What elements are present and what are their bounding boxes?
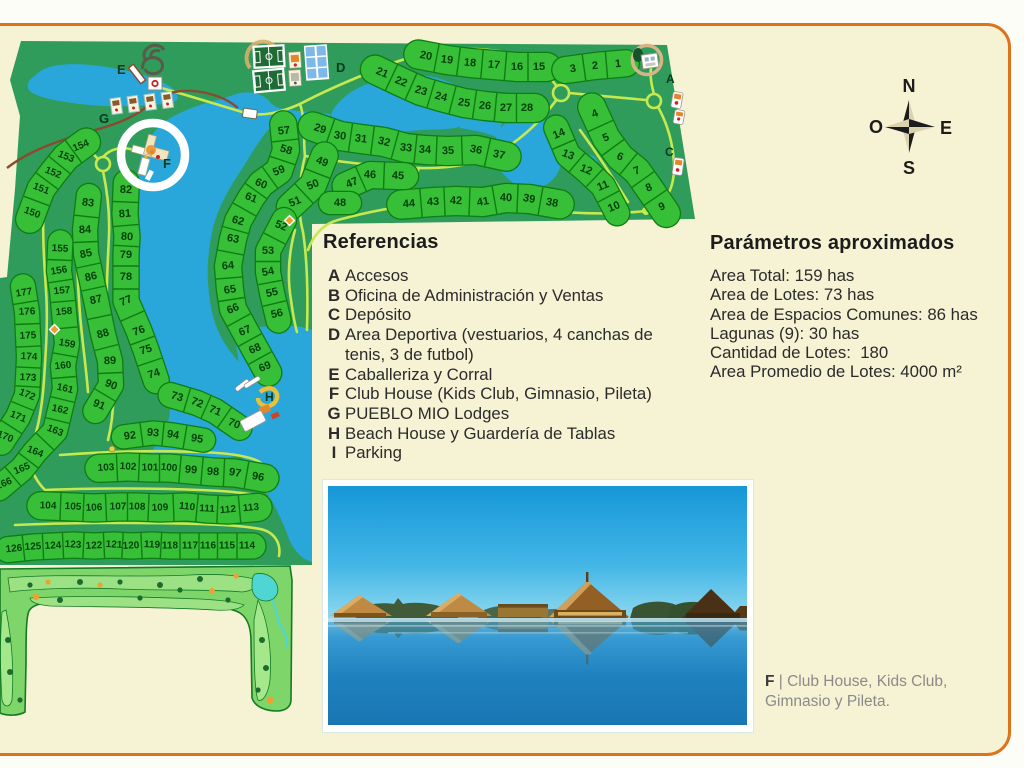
svg-text:30: 30 <box>333 129 347 143</box>
svg-text:158: 158 <box>55 306 73 318</box>
svg-text:118: 118 <box>162 541 179 552</box>
svg-text:N: N <box>903 76 916 96</box>
svg-text:35: 35 <box>442 145 455 157</box>
svg-text:15: 15 <box>533 61 545 73</box>
svg-text:96: 96 <box>251 470 265 484</box>
svg-text:78: 78 <box>120 271 132 283</box>
svg-text:53: 53 <box>262 245 274 257</box>
svg-text:39: 39 <box>522 192 536 206</box>
svg-text:110: 110 <box>178 501 196 514</box>
svg-text:126: 126 <box>5 543 23 556</box>
svg-text:111: 111 <box>199 503 216 515</box>
svg-text:175: 175 <box>19 330 37 342</box>
svg-text:92: 92 <box>123 429 137 442</box>
svg-text:34: 34 <box>419 144 433 156</box>
svg-text:115: 115 <box>219 541 236 552</box>
svg-text:117: 117 <box>182 541 199 552</box>
svg-text:93: 93 <box>146 426 159 439</box>
svg-text:43: 43 <box>427 196 440 208</box>
svg-text:101: 101 <box>142 463 159 474</box>
svg-text:173: 173 <box>19 372 37 384</box>
svg-text:120: 120 <box>122 540 140 552</box>
svg-text:A: A <box>666 72 675 86</box>
svg-text:44: 44 <box>402 197 416 210</box>
svg-text:33: 33 <box>399 141 412 154</box>
svg-text:38: 38 <box>545 196 559 210</box>
svg-text:113: 113 <box>242 502 259 514</box>
svg-text:41: 41 <box>476 195 490 209</box>
svg-text:65: 65 <box>223 283 237 297</box>
svg-text:157: 157 <box>53 285 71 297</box>
svg-text:176: 176 <box>18 306 35 318</box>
svg-text:103: 103 <box>97 462 115 474</box>
svg-text:19: 19 <box>440 53 454 66</box>
svg-text:85: 85 <box>79 247 93 261</box>
svg-text:42: 42 <box>450 195 463 207</box>
svg-text:25: 25 <box>457 96 471 110</box>
svg-text:45: 45 <box>392 170 405 182</box>
svg-text:122: 122 <box>85 540 103 552</box>
svg-text:S: S <box>903 158 915 178</box>
svg-text:48: 48 <box>334 197 346 209</box>
svg-text:H: H <box>265 390 274 404</box>
svg-text:98: 98 <box>207 466 220 479</box>
svg-text:F: F <box>163 156 171 171</box>
svg-text:82: 82 <box>120 184 133 196</box>
svg-text:119: 119 <box>144 539 161 551</box>
svg-text:D: D <box>336 60 345 75</box>
svg-text:57: 57 <box>277 124 290 137</box>
svg-text:40: 40 <box>500 192 513 204</box>
svg-text:106: 106 <box>85 502 102 514</box>
svg-text:97: 97 <box>228 466 242 480</box>
svg-text:31: 31 <box>354 132 368 145</box>
svg-text:81: 81 <box>118 207 131 220</box>
svg-text:O: O <box>869 117 883 137</box>
svg-text:E: E <box>940 118 952 138</box>
svg-text:104: 104 <box>39 500 56 512</box>
svg-text:109: 109 <box>151 502 168 514</box>
svg-text:124: 124 <box>44 540 62 552</box>
svg-text:27: 27 <box>500 102 512 114</box>
svg-text:155: 155 <box>51 243 69 255</box>
svg-text:107: 107 <box>110 502 127 513</box>
svg-text:125: 125 <box>24 541 42 553</box>
svg-text:89: 89 <box>104 355 117 367</box>
svg-text:108: 108 <box>128 501 145 513</box>
svg-text:174: 174 <box>20 351 38 363</box>
svg-text:37: 37 <box>492 148 506 162</box>
svg-text:G: G <box>99 111 109 126</box>
svg-text:116: 116 <box>200 541 217 552</box>
svg-text:64: 64 <box>221 259 235 272</box>
svg-text:20: 20 <box>419 49 433 63</box>
svg-text:E: E <box>117 62 126 77</box>
svg-text:2: 2 <box>591 60 598 72</box>
svg-text:121: 121 <box>105 539 123 551</box>
svg-text:63: 63 <box>226 232 240 246</box>
svg-text:C: C <box>665 145 674 159</box>
svg-text:99: 99 <box>184 463 197 476</box>
svg-text:83: 83 <box>81 196 94 209</box>
svg-text:123: 123 <box>64 539 82 551</box>
svg-text:80: 80 <box>121 231 134 244</box>
svg-text:112: 112 <box>219 504 236 516</box>
svg-text:105: 105 <box>64 501 82 513</box>
svg-text:17: 17 <box>487 58 500 71</box>
svg-text:100: 100 <box>160 462 178 474</box>
svg-text:46: 46 <box>364 169 377 181</box>
svg-text:114: 114 <box>239 541 256 552</box>
svg-text:102: 102 <box>119 461 137 473</box>
svg-text:79: 79 <box>120 249 132 261</box>
svg-text:160: 160 <box>54 360 72 372</box>
svg-text:86: 86 <box>84 270 98 284</box>
svg-text:26: 26 <box>478 99 491 112</box>
svg-text:16: 16 <box>511 61 523 73</box>
svg-text:95: 95 <box>190 432 204 446</box>
svg-text:28: 28 <box>521 102 533 114</box>
svg-text:87: 87 <box>89 293 103 307</box>
svg-text:18: 18 <box>463 56 476 69</box>
svg-text:84: 84 <box>79 224 93 236</box>
svg-text:36: 36 <box>469 143 483 157</box>
svg-text:1: 1 <box>614 58 621 70</box>
